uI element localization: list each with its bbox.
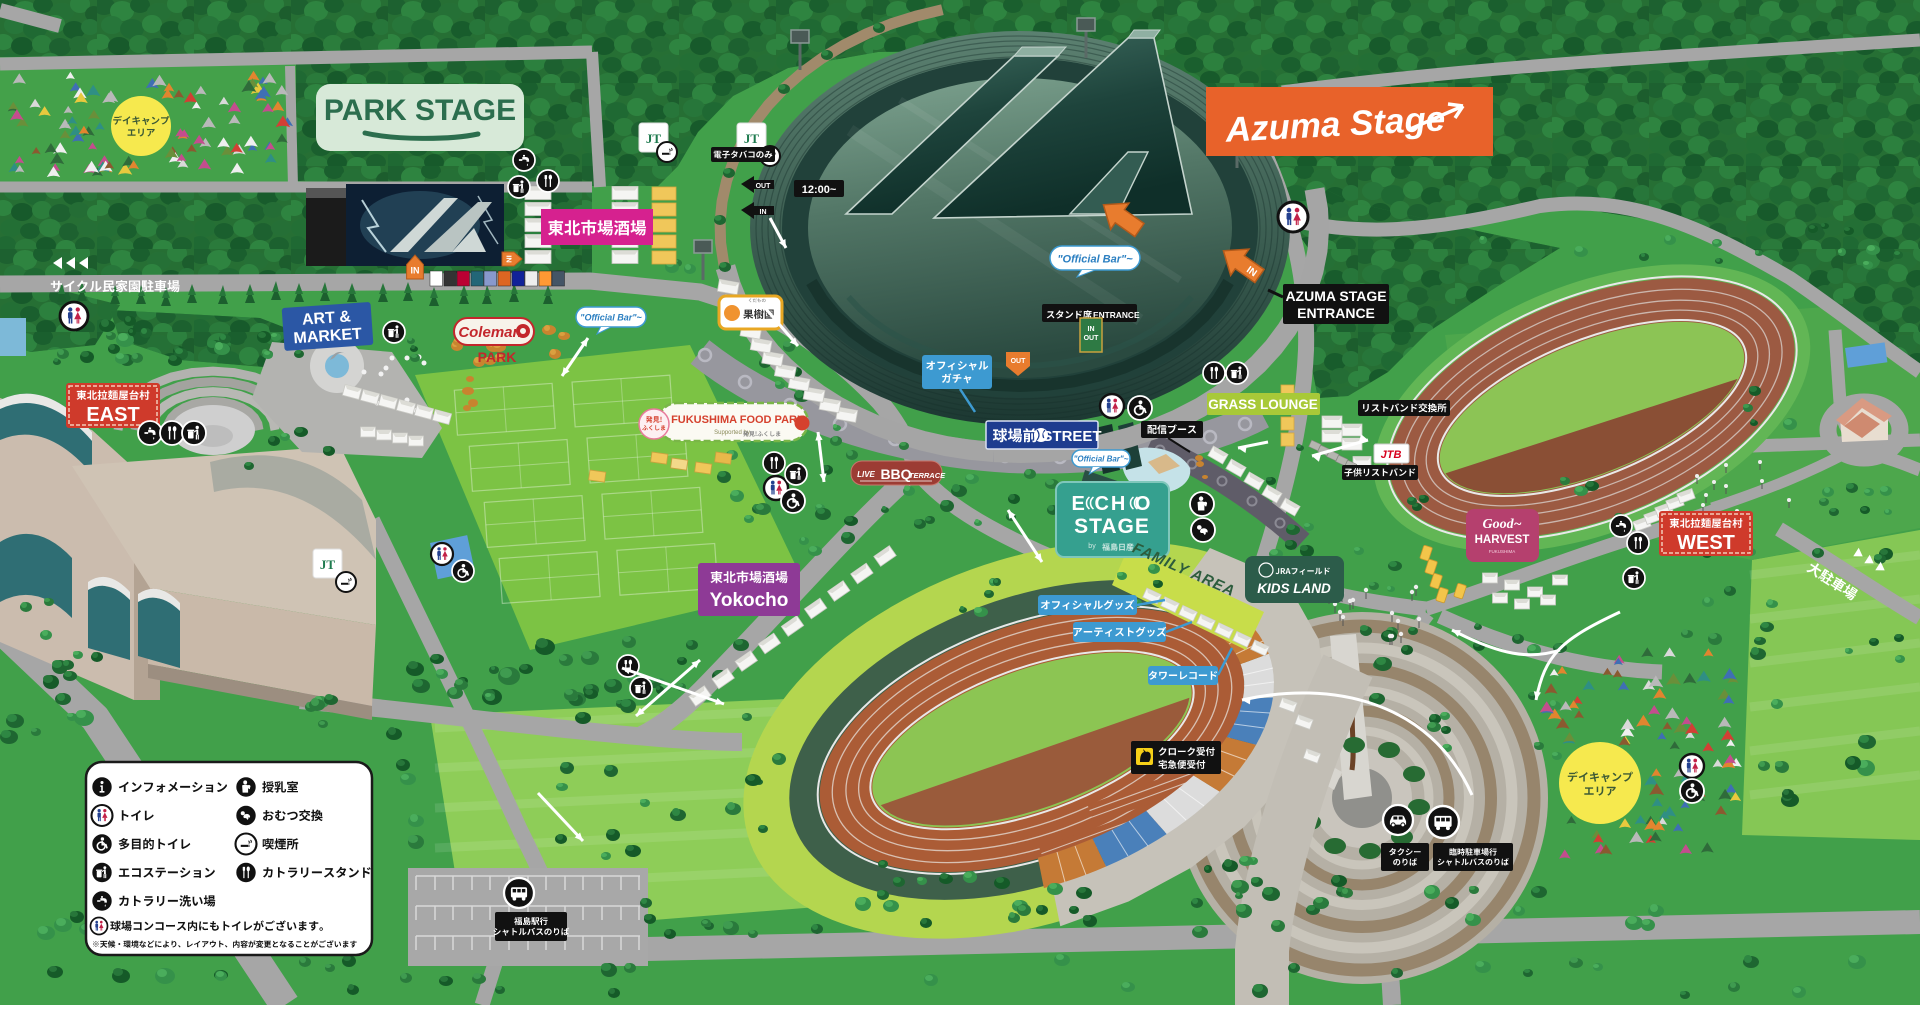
svg-text:FUKUSHIMA FOOD PARK: FUKUSHIMA FOOD PARK — [671, 414, 805, 426]
svg-text:ART &: ART & — [301, 308, 351, 328]
svg-text:PARK STAGE: PARK STAGE — [324, 94, 516, 127]
svg-text:IN: IN — [760, 209, 767, 216]
svg-text:by: by — [1088, 543, 1096, 550]
svg-text:JTB: JTB — [1381, 449, 1402, 461]
svg-text:WEST: WEST — [1677, 532, 1735, 554]
svg-text:IN: IN — [505, 255, 514, 263]
svg-text:EAST: EAST — [86, 404, 139, 426]
svg-text:KIDS LAND: KIDS LAND — [1257, 581, 1331, 596]
svg-text:FUKUSHIMA: FUKUSHIMA — [1489, 549, 1516, 554]
svg-text:JT: JT — [744, 131, 760, 146]
svg-text:LIVE: LIVE — [857, 470, 875, 479]
svg-text:STREET: STREET — [1042, 428, 1101, 445]
svg-text:BBQ: BBQ — [880, 466, 911, 482]
svg-text:Good~: Good~ — [1482, 517, 1521, 532]
svg-text:TERRACE: TERRACE — [909, 471, 946, 480]
svg-text:AZUMA STAGE: AZUMA STAGE — [1285, 288, 1386, 304]
svg-text:Coleman: Coleman — [458, 324, 521, 341]
svg-text:JT: JT — [646, 131, 662, 146]
svg-text:"Official Bar"~: "Official Bar"~ — [1057, 253, 1133, 265]
svg-text:ENTRANCE: ENTRANCE — [1297, 305, 1375, 321]
svg-text:OUT: OUT — [756, 183, 772, 190]
svg-text:"Official Bar"~: "Official Bar"~ — [580, 313, 642, 323]
svg-text:12:00~: 12:00~ — [802, 184, 837, 196]
svg-text:HARVEST: HARVEST — [1475, 534, 1530, 546]
svg-text:IN: IN — [411, 266, 420, 276]
svg-text:STAGE: STAGE — [1074, 515, 1150, 538]
svg-text:PARK: PARK — [478, 349, 517, 365]
svg-text:GRASS LOUNGE: GRASS LOUNGE — [1208, 397, 1318, 412]
svg-text:Yokocho: Yokocho — [710, 590, 789, 611]
svg-text:JT: JT — [320, 557, 336, 572]
svg-text:OUT: OUT — [1011, 358, 1027, 365]
svg-text:E CH O: E CH O — [1072, 493, 1153, 515]
svg-text:"Official Bar"~: "Official Bar"~ — [1074, 455, 1129, 464]
svg-text:IN: IN — [1088, 326, 1095, 333]
svg-text:OUT: OUT — [1084, 335, 1100, 342]
